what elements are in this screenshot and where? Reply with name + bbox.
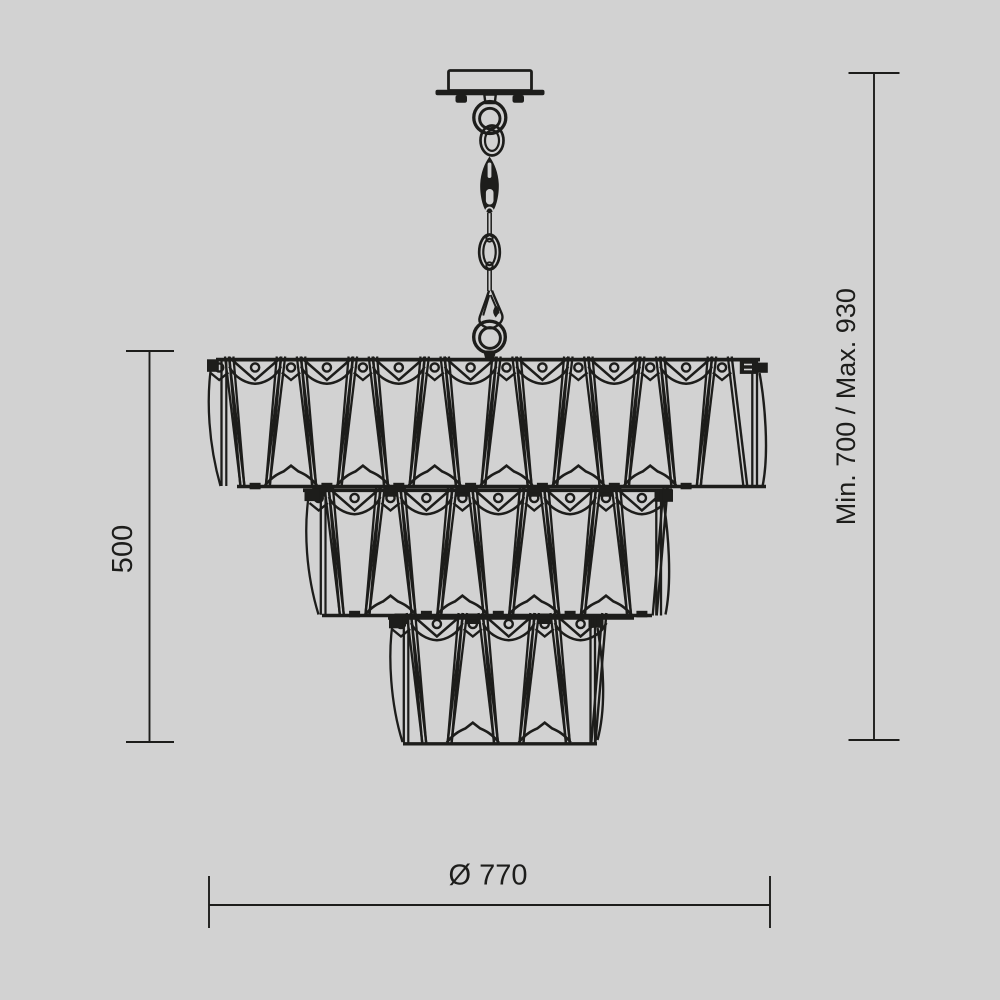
svg-text:Ø 770: Ø 770	[449, 860, 528, 892]
svg-text:Min. 700 / Max. 930: Min. 700 / Max. 930	[831, 288, 861, 525]
svg-text:500: 500	[107, 525, 139, 573]
